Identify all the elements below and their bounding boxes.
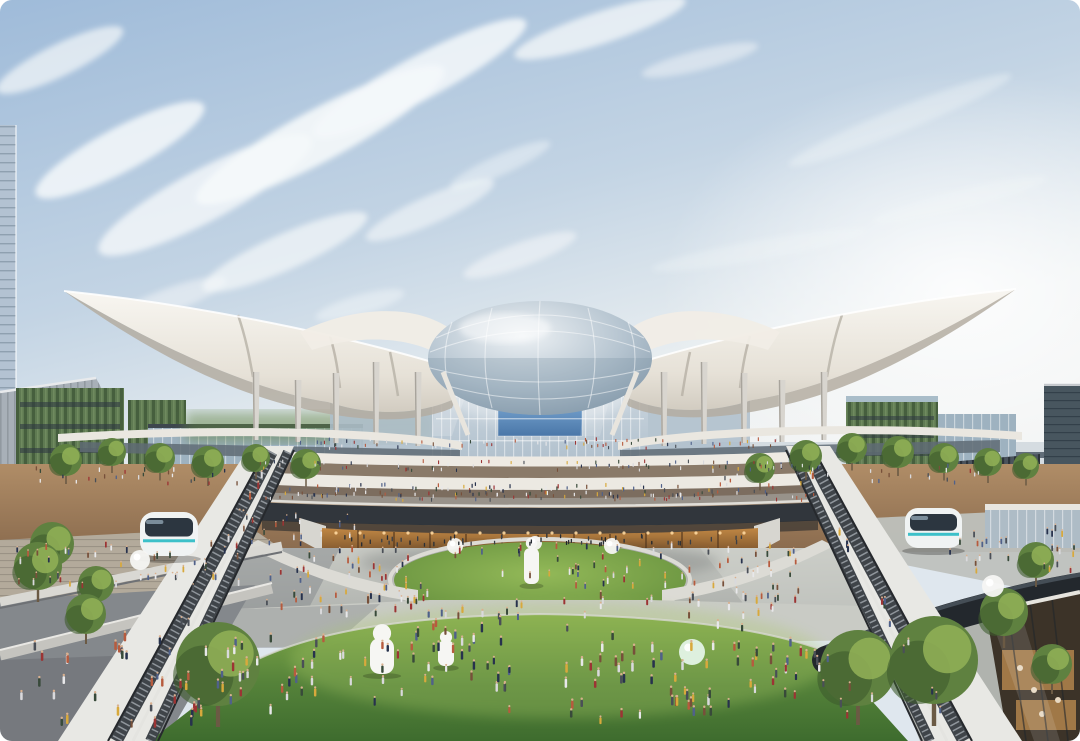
person bbox=[650, 676, 653, 684]
person-head bbox=[1055, 523, 1057, 525]
person-head bbox=[41, 650, 43, 652]
person-head bbox=[703, 706, 705, 708]
person bbox=[266, 600, 268, 605]
person-head bbox=[239, 509, 241, 511]
person bbox=[705, 661, 708, 669]
person-head bbox=[623, 672, 625, 674]
person bbox=[227, 536, 229, 542]
person-head bbox=[570, 708, 572, 710]
person bbox=[410, 603, 412, 609]
warm-light bbox=[550, 531, 553, 534]
person bbox=[1005, 538, 1007, 544]
person-head bbox=[639, 710, 641, 712]
person-head bbox=[1043, 563, 1045, 565]
person-head bbox=[230, 694, 232, 696]
person bbox=[794, 692, 796, 699]
person bbox=[354, 525, 356, 530]
person bbox=[690, 642, 693, 651]
person bbox=[342, 466, 343, 469]
person bbox=[375, 610, 377, 616]
person bbox=[767, 461, 768, 464]
person-head bbox=[688, 610, 690, 612]
person bbox=[301, 593, 303, 600]
person bbox=[648, 465, 649, 469]
person-head bbox=[660, 650, 662, 652]
person-head bbox=[1000, 537, 1002, 539]
person bbox=[699, 497, 700, 500]
person-head bbox=[563, 597, 565, 599]
person bbox=[610, 492, 611, 496]
person bbox=[461, 638, 463, 646]
person bbox=[813, 493, 814, 496]
person bbox=[409, 540, 410, 545]
person bbox=[753, 461, 754, 464]
person bbox=[805, 651, 807, 659]
person bbox=[508, 707, 510, 713]
person-head bbox=[959, 538, 961, 540]
tree-canopy-light bbox=[156, 446, 173, 463]
person bbox=[336, 486, 337, 490]
person bbox=[365, 444, 366, 447]
person bbox=[41, 653, 44, 661]
person-head bbox=[789, 637, 791, 639]
sphere-highlight bbox=[607, 541, 613, 547]
person bbox=[296, 568, 298, 573]
person bbox=[242, 673, 244, 680]
person bbox=[620, 710, 623, 717]
person-head bbox=[33, 578, 35, 580]
person-head bbox=[935, 691, 937, 693]
person bbox=[560, 534, 561, 538]
person bbox=[313, 651, 315, 658]
person-head bbox=[717, 619, 719, 621]
person bbox=[468, 645, 470, 651]
person bbox=[509, 484, 510, 488]
person-head bbox=[270, 632, 272, 634]
person bbox=[567, 486, 568, 489]
person bbox=[667, 443, 668, 446]
person bbox=[611, 633, 614, 640]
person bbox=[481, 624, 483, 633]
person bbox=[279, 463, 280, 467]
person-head bbox=[437, 640, 439, 642]
tree-canopy-light bbox=[756, 456, 773, 473]
person bbox=[433, 542, 434, 547]
person bbox=[795, 674, 797, 680]
person bbox=[457, 612, 459, 619]
person-head bbox=[281, 684, 283, 686]
person-head bbox=[769, 542, 771, 544]
person bbox=[339, 653, 341, 660]
person bbox=[840, 700, 842, 708]
person bbox=[150, 705, 153, 712]
person bbox=[363, 534, 364, 538]
person-head bbox=[405, 576, 407, 578]
person bbox=[286, 516, 288, 522]
person-head bbox=[461, 649, 463, 651]
person bbox=[381, 666, 383, 673]
person-head bbox=[840, 698, 842, 700]
sphere-sculpture bbox=[982, 575, 1004, 597]
person bbox=[809, 465, 810, 470]
person bbox=[603, 581, 605, 587]
person-head bbox=[816, 655, 818, 657]
person bbox=[711, 489, 712, 493]
person bbox=[454, 535, 455, 539]
person-head bbox=[710, 705, 712, 707]
person bbox=[628, 465, 629, 468]
person bbox=[1043, 564, 1045, 569]
person bbox=[680, 466, 681, 470]
person-head bbox=[200, 707, 202, 709]
person bbox=[246, 515, 248, 519]
person-head bbox=[151, 676, 153, 678]
person bbox=[190, 717, 193, 726]
person bbox=[269, 706, 271, 714]
person bbox=[784, 690, 786, 698]
person bbox=[664, 582, 666, 588]
person bbox=[293, 535, 295, 540]
person bbox=[38, 678, 41, 687]
person bbox=[949, 550, 951, 555]
person bbox=[929, 476, 930, 480]
person-head bbox=[461, 604, 463, 606]
person bbox=[881, 598, 883, 605]
person bbox=[814, 651, 816, 658]
person bbox=[1049, 567, 1051, 572]
pod-teal-stripe bbox=[908, 533, 959, 536]
person bbox=[481, 611, 483, 618]
person bbox=[279, 496, 280, 499]
person-head bbox=[846, 538, 848, 540]
person-head bbox=[124, 631, 126, 633]
person bbox=[370, 593, 372, 599]
person-head bbox=[115, 580, 117, 582]
person bbox=[411, 644, 413, 651]
person-head bbox=[27, 549, 29, 551]
person bbox=[602, 598, 604, 604]
person bbox=[761, 593, 763, 599]
person bbox=[269, 541, 271, 546]
person-head bbox=[339, 651, 341, 653]
person bbox=[387, 645, 389, 652]
person-head bbox=[1051, 544, 1053, 546]
person bbox=[66, 715, 69, 724]
person bbox=[200, 709, 202, 716]
person-head bbox=[789, 571, 791, 573]
person-head bbox=[493, 656, 495, 658]
person bbox=[881, 469, 882, 473]
person-head bbox=[435, 618, 437, 620]
person-head bbox=[498, 611, 500, 613]
person bbox=[299, 520, 301, 525]
person-head bbox=[822, 679, 824, 681]
person-head bbox=[931, 687, 933, 689]
person bbox=[621, 653, 624, 661]
person bbox=[708, 488, 709, 492]
person bbox=[646, 464, 647, 467]
person bbox=[349, 533, 351, 538]
person bbox=[472, 635, 474, 642]
person bbox=[311, 495, 312, 499]
person bbox=[275, 522, 277, 527]
person bbox=[641, 534, 642, 538]
person-head bbox=[600, 590, 602, 592]
person bbox=[154, 556, 156, 561]
person-head bbox=[736, 586, 738, 588]
person bbox=[332, 556, 334, 561]
person-head bbox=[758, 608, 760, 610]
tree-canopy-light bbox=[849, 638, 891, 680]
person bbox=[449, 443, 450, 447]
person bbox=[513, 496, 514, 499]
person bbox=[523, 461, 524, 464]
person bbox=[348, 573, 350, 579]
person bbox=[615, 535, 616, 540]
person bbox=[402, 562, 404, 567]
person bbox=[376, 443, 377, 446]
person-head bbox=[94, 691, 96, 693]
person bbox=[159, 637, 161, 644]
person-head bbox=[221, 669, 223, 671]
person bbox=[187, 673, 190, 680]
person-head bbox=[1070, 566, 1072, 568]
person bbox=[161, 678, 163, 686]
person-head bbox=[459, 546, 461, 548]
person bbox=[754, 686, 756, 693]
person bbox=[1073, 545, 1075, 550]
person bbox=[827, 656, 829, 662]
person-head bbox=[121, 648, 123, 650]
person bbox=[766, 551, 768, 557]
person-head bbox=[548, 569, 550, 571]
person bbox=[60, 719, 63, 726]
person-head bbox=[639, 559, 641, 561]
person-head bbox=[433, 643, 435, 645]
person bbox=[638, 462, 639, 466]
person bbox=[758, 610, 760, 616]
person bbox=[154, 719, 157, 728]
person bbox=[603, 540, 604, 545]
person bbox=[396, 498, 397, 501]
person-head bbox=[719, 561, 721, 563]
person bbox=[309, 552, 311, 558]
person bbox=[669, 495, 670, 499]
person-head bbox=[767, 549, 769, 551]
person-head bbox=[973, 530, 975, 532]
person bbox=[461, 651, 463, 659]
person bbox=[651, 494, 652, 497]
person-head bbox=[794, 595, 796, 597]
person bbox=[427, 664, 429, 671]
person-head bbox=[777, 583, 779, 585]
person bbox=[566, 626, 568, 632]
person bbox=[776, 498, 777, 502]
person bbox=[406, 442, 407, 445]
person bbox=[939, 466, 940, 470]
person bbox=[396, 567, 398, 572]
person bbox=[687, 702, 690, 710]
person-head bbox=[311, 676, 313, 678]
person bbox=[378, 595, 380, 602]
person bbox=[499, 617, 501, 625]
person bbox=[638, 439, 639, 442]
person bbox=[588, 536, 589, 540]
tower-right-roof-edge bbox=[1044, 383, 1080, 386]
person bbox=[590, 540, 591, 544]
person-head bbox=[556, 542, 558, 544]
person bbox=[816, 657, 818, 665]
person bbox=[728, 604, 730, 611]
person bbox=[165, 566, 167, 572]
person bbox=[438, 483, 439, 487]
person bbox=[939, 708, 941, 714]
person bbox=[270, 497, 271, 500]
person-head bbox=[1056, 545, 1058, 547]
person bbox=[669, 463, 670, 467]
person bbox=[351, 547, 353, 553]
person-head bbox=[94, 551, 96, 553]
person bbox=[622, 465, 623, 469]
person bbox=[238, 580, 240, 586]
person bbox=[156, 674, 158, 680]
person bbox=[481, 549, 483, 555]
person bbox=[667, 541, 668, 545]
person bbox=[580, 495, 581, 498]
robot-body bbox=[524, 548, 539, 584]
person bbox=[1007, 556, 1009, 561]
person bbox=[398, 493, 399, 497]
person-head bbox=[417, 626, 419, 628]
person bbox=[347, 557, 349, 563]
person bbox=[34, 642, 37, 650]
person-head bbox=[364, 656, 366, 658]
person-head bbox=[335, 591, 337, 593]
person-head bbox=[738, 640, 740, 642]
person bbox=[548, 571, 550, 577]
person bbox=[601, 643, 604, 652]
person bbox=[417, 628, 419, 637]
person-head bbox=[1049, 565, 1051, 567]
person bbox=[789, 572, 791, 577]
person bbox=[607, 578, 609, 584]
person bbox=[36, 550, 38, 555]
person bbox=[726, 483, 727, 486]
person-head bbox=[320, 607, 322, 609]
person bbox=[777, 585, 779, 590]
person-head bbox=[387, 643, 389, 645]
person bbox=[293, 592, 295, 598]
person bbox=[438, 460, 439, 464]
person bbox=[796, 496, 797, 500]
person bbox=[392, 537, 393, 542]
person-head bbox=[156, 672, 158, 674]
person bbox=[335, 492, 336, 496]
person bbox=[483, 440, 484, 443]
person-head bbox=[581, 656, 583, 658]
tree-canopy-light bbox=[894, 439, 912, 457]
person-head bbox=[282, 520, 283, 521]
person bbox=[608, 446, 609, 449]
person bbox=[792, 495, 793, 498]
person-head bbox=[300, 540, 301, 541]
person bbox=[370, 540, 371, 545]
pod-shadow bbox=[902, 547, 965, 555]
person bbox=[493, 658, 495, 665]
pod-glass-highlight bbox=[911, 516, 928, 520]
person bbox=[335, 443, 336, 446]
person-head bbox=[82, 581, 84, 583]
person-head bbox=[45, 543, 47, 545]
person bbox=[373, 563, 375, 569]
person-head bbox=[172, 572, 174, 574]
person bbox=[736, 588, 738, 593]
person-head bbox=[126, 545, 128, 547]
person bbox=[653, 494, 654, 498]
person bbox=[118, 645, 121, 652]
person bbox=[508, 667, 510, 673]
person-head bbox=[194, 559, 196, 561]
tree-canopy-light bbox=[253, 447, 268, 462]
person bbox=[805, 494, 806, 498]
person bbox=[57, 573, 59, 579]
person bbox=[735, 578, 737, 584]
person bbox=[421, 440, 422, 443]
person-head bbox=[426, 589, 428, 591]
person bbox=[793, 549, 795, 554]
person-head bbox=[110, 544, 112, 546]
person bbox=[194, 477, 195, 481]
person-head bbox=[187, 670, 189, 672]
person bbox=[472, 493, 473, 496]
person-head bbox=[204, 558, 206, 560]
person bbox=[242, 511, 244, 517]
person bbox=[736, 491, 737, 495]
person bbox=[500, 638, 502, 646]
person bbox=[713, 583, 715, 589]
person bbox=[626, 567, 628, 573]
person bbox=[428, 611, 430, 617]
person-head bbox=[396, 566, 398, 568]
person bbox=[435, 620, 437, 627]
person bbox=[529, 573, 531, 579]
person-head bbox=[599, 653, 601, 655]
person bbox=[317, 461, 318, 464]
person bbox=[681, 574, 683, 580]
person bbox=[99, 467, 100, 472]
rendering-frame bbox=[0, 0, 1080, 741]
person-head bbox=[599, 715, 601, 717]
person bbox=[384, 483, 385, 487]
sphere-highlight bbox=[134, 554, 141, 561]
person bbox=[605, 567, 607, 572]
person-head bbox=[281, 602, 283, 604]
person bbox=[768, 468, 769, 472]
person bbox=[703, 708, 706, 716]
person bbox=[381, 642, 383, 649]
person bbox=[454, 553, 456, 558]
person bbox=[588, 441, 589, 445]
person bbox=[581, 464, 582, 467]
person bbox=[174, 696, 176, 703]
person-head bbox=[793, 547, 795, 549]
person-head bbox=[407, 596, 409, 598]
person bbox=[616, 546, 618, 552]
person bbox=[577, 461, 578, 464]
person-head bbox=[623, 575, 625, 577]
person bbox=[367, 596, 369, 604]
person-head bbox=[269, 539, 270, 540]
